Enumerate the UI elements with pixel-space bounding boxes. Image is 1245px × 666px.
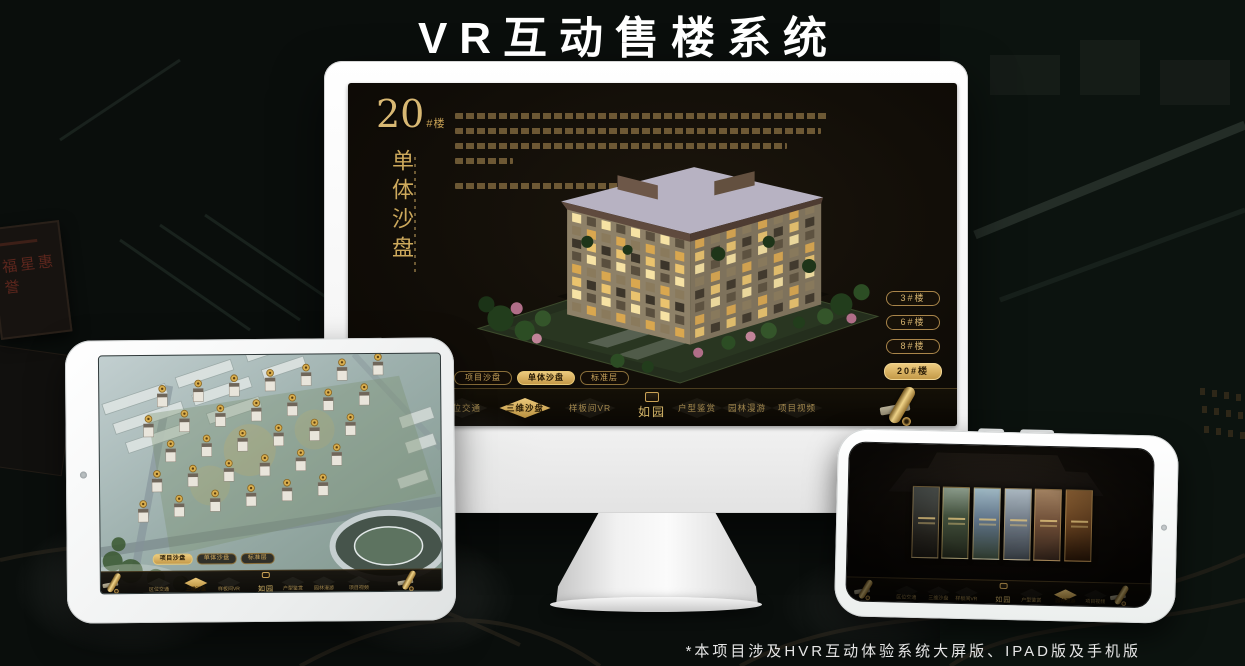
gallery-panel[interactable]: [1033, 489, 1062, 562]
nav-item-showroom-vr[interactable]: 样板间VR: [953, 587, 979, 599]
scroll-menu-toggle-icon[interactable]: [896, 385, 908, 425]
tab-project-sandtable[interactable]: 项目沙盘: [153, 554, 193, 565]
scroll-menu-toggle-icon[interactable]: [111, 572, 117, 593]
building-render: [466, 145, 890, 387]
gallery-panel[interactable]: [1064, 489, 1093, 562]
floor-button[interactable]: 8#楼: [886, 339, 940, 354]
nav-item-3d-sandtable[interactable]: 三维沙盘: [496, 398, 554, 418]
scroll-menu-toggle-icon[interactable]: [1118, 585, 1125, 606]
scroll-menu-toggle-icon[interactable]: [406, 570, 412, 591]
tab-single-sandtable[interactable]: 单体沙盘: [517, 371, 575, 385]
gallery-panel[interactable]: [1003, 488, 1032, 561]
description-text-line: [455, 128, 821, 134]
nav-item-unit-plans[interactable]: 户型鉴赏: [280, 577, 306, 588]
floor-button-active[interactable]: 20#楼: [884, 363, 942, 380]
nav-item-unit-plans[interactable]: 户型鉴赏: [1018, 588, 1044, 600]
tab-standard-floor[interactable]: 标准层: [580, 371, 629, 385]
floor-button-group: 3#楼 6#楼 8#楼 20#楼: [882, 291, 944, 389]
title-divider: [414, 157, 416, 275]
poster: 福星惠誉 VR互动售楼系统 20#楼 单体沙盘: [0, 0, 1245, 666]
nav-item-project-video[interactable]: 项目视频: [1082, 590, 1108, 602]
nav-item-location[interactable]: 区位交通: [893, 585, 919, 597]
nav-item-garden-tour[interactable]: 园林漫游: [1052, 589, 1078, 601]
gallery-panel[interactable]: [972, 487, 1001, 560]
page-title: VR互动售楼系统: [0, 2, 1245, 66]
building-panel-title: 20#楼: [376, 95, 445, 133]
plaque-ornament: [0, 239, 37, 247]
tablet-view-tabs: 项目沙盘 单体沙盘 标准层: [153, 553, 275, 565]
tablet-camera-icon: [80, 472, 87, 479]
gallery-panel[interactable]: [911, 486, 940, 559]
scroll-menu-toggle-icon[interactable]: [862, 579, 869, 600]
nav-item-project-video[interactable]: 项目视频: [346, 576, 372, 587]
tab-single-sandtable[interactable]: 单体沙盘: [197, 553, 237, 564]
tablet-nav-bar: 区位交通 三维沙盘 样板间VR 如园 户型鉴赏 园林漫游 项目视频: [101, 568, 442, 593]
gallery-panel[interactable]: [941, 487, 970, 560]
panel-title-vertical: 单体沙盘: [384, 149, 416, 265]
nav-item-location[interactable]: 区位交通: [146, 578, 172, 589]
logo-seal-icon: [1000, 583, 1008, 589]
tab-standard-floor[interactable]: 标准层: [241, 553, 275, 564]
monitor-base: [550, 597, 762, 612]
view-tabs: 项目沙盘 单体沙盘 标准层: [454, 371, 629, 385]
tablet-device: 项目沙盘 单体沙盘 标准层 区位交通 三维沙盘 样板间VR 如园 户型鉴赏 园林…: [65, 337, 456, 623]
floor-button[interactable]: 3#楼: [886, 291, 940, 306]
floor-button[interactable]: 6#楼: [886, 315, 940, 330]
footnote: *本项目涉及HVR互动体验系统大屏版、IPAD版及手机版: [686, 640, 1141, 661]
plaque-text: 福星惠誉: [1, 252, 57, 297]
description-text-line: [455, 113, 827, 119]
phone-camera-icon: [1161, 525, 1167, 531]
nav-item-project-video[interactable]: 项目视频: [768, 398, 826, 418]
project-logo: 如园: [988, 583, 1019, 608]
nav-item-3d-sandtable[interactable]: 三维沙盘: [925, 586, 951, 598]
tab-project-sandtable[interactable]: 项目沙盘: [454, 371, 512, 385]
tablet-screen: 项目沙盘 单体沙盘 标准层 区位交通 三维沙盘 样板间VR 如园 户型鉴赏 园林…: [99, 353, 442, 593]
logo-seal-icon: [645, 392, 659, 402]
logo-seal-icon: [262, 572, 270, 578]
phone-screen: 区位交通 三维沙盘 样板间VR 如园 户型鉴赏 园林漫游 项目视频: [846, 442, 1154, 607]
building-number: 20: [376, 92, 424, 136]
phone-device: 区位交通 三维沙盘 样板间VR 如园 户型鉴赏 园林漫游 项目视频: [834, 428, 1179, 624]
nav-item-showroom-vr[interactable]: 样板间VR: [561, 398, 619, 418]
nav-item-3d-sandtable[interactable]: 三维沙盘: [183, 577, 209, 588]
building-number-suffix: #楼: [426, 118, 445, 130]
project-logo: 如园: [251, 572, 281, 594]
monitor-stand: [556, 513, 758, 605]
nav-item-showroom-vr[interactable]: 样板间VR: [216, 577, 242, 588]
nav-item-garden-tour[interactable]: 园林漫游: [311, 576, 337, 587]
